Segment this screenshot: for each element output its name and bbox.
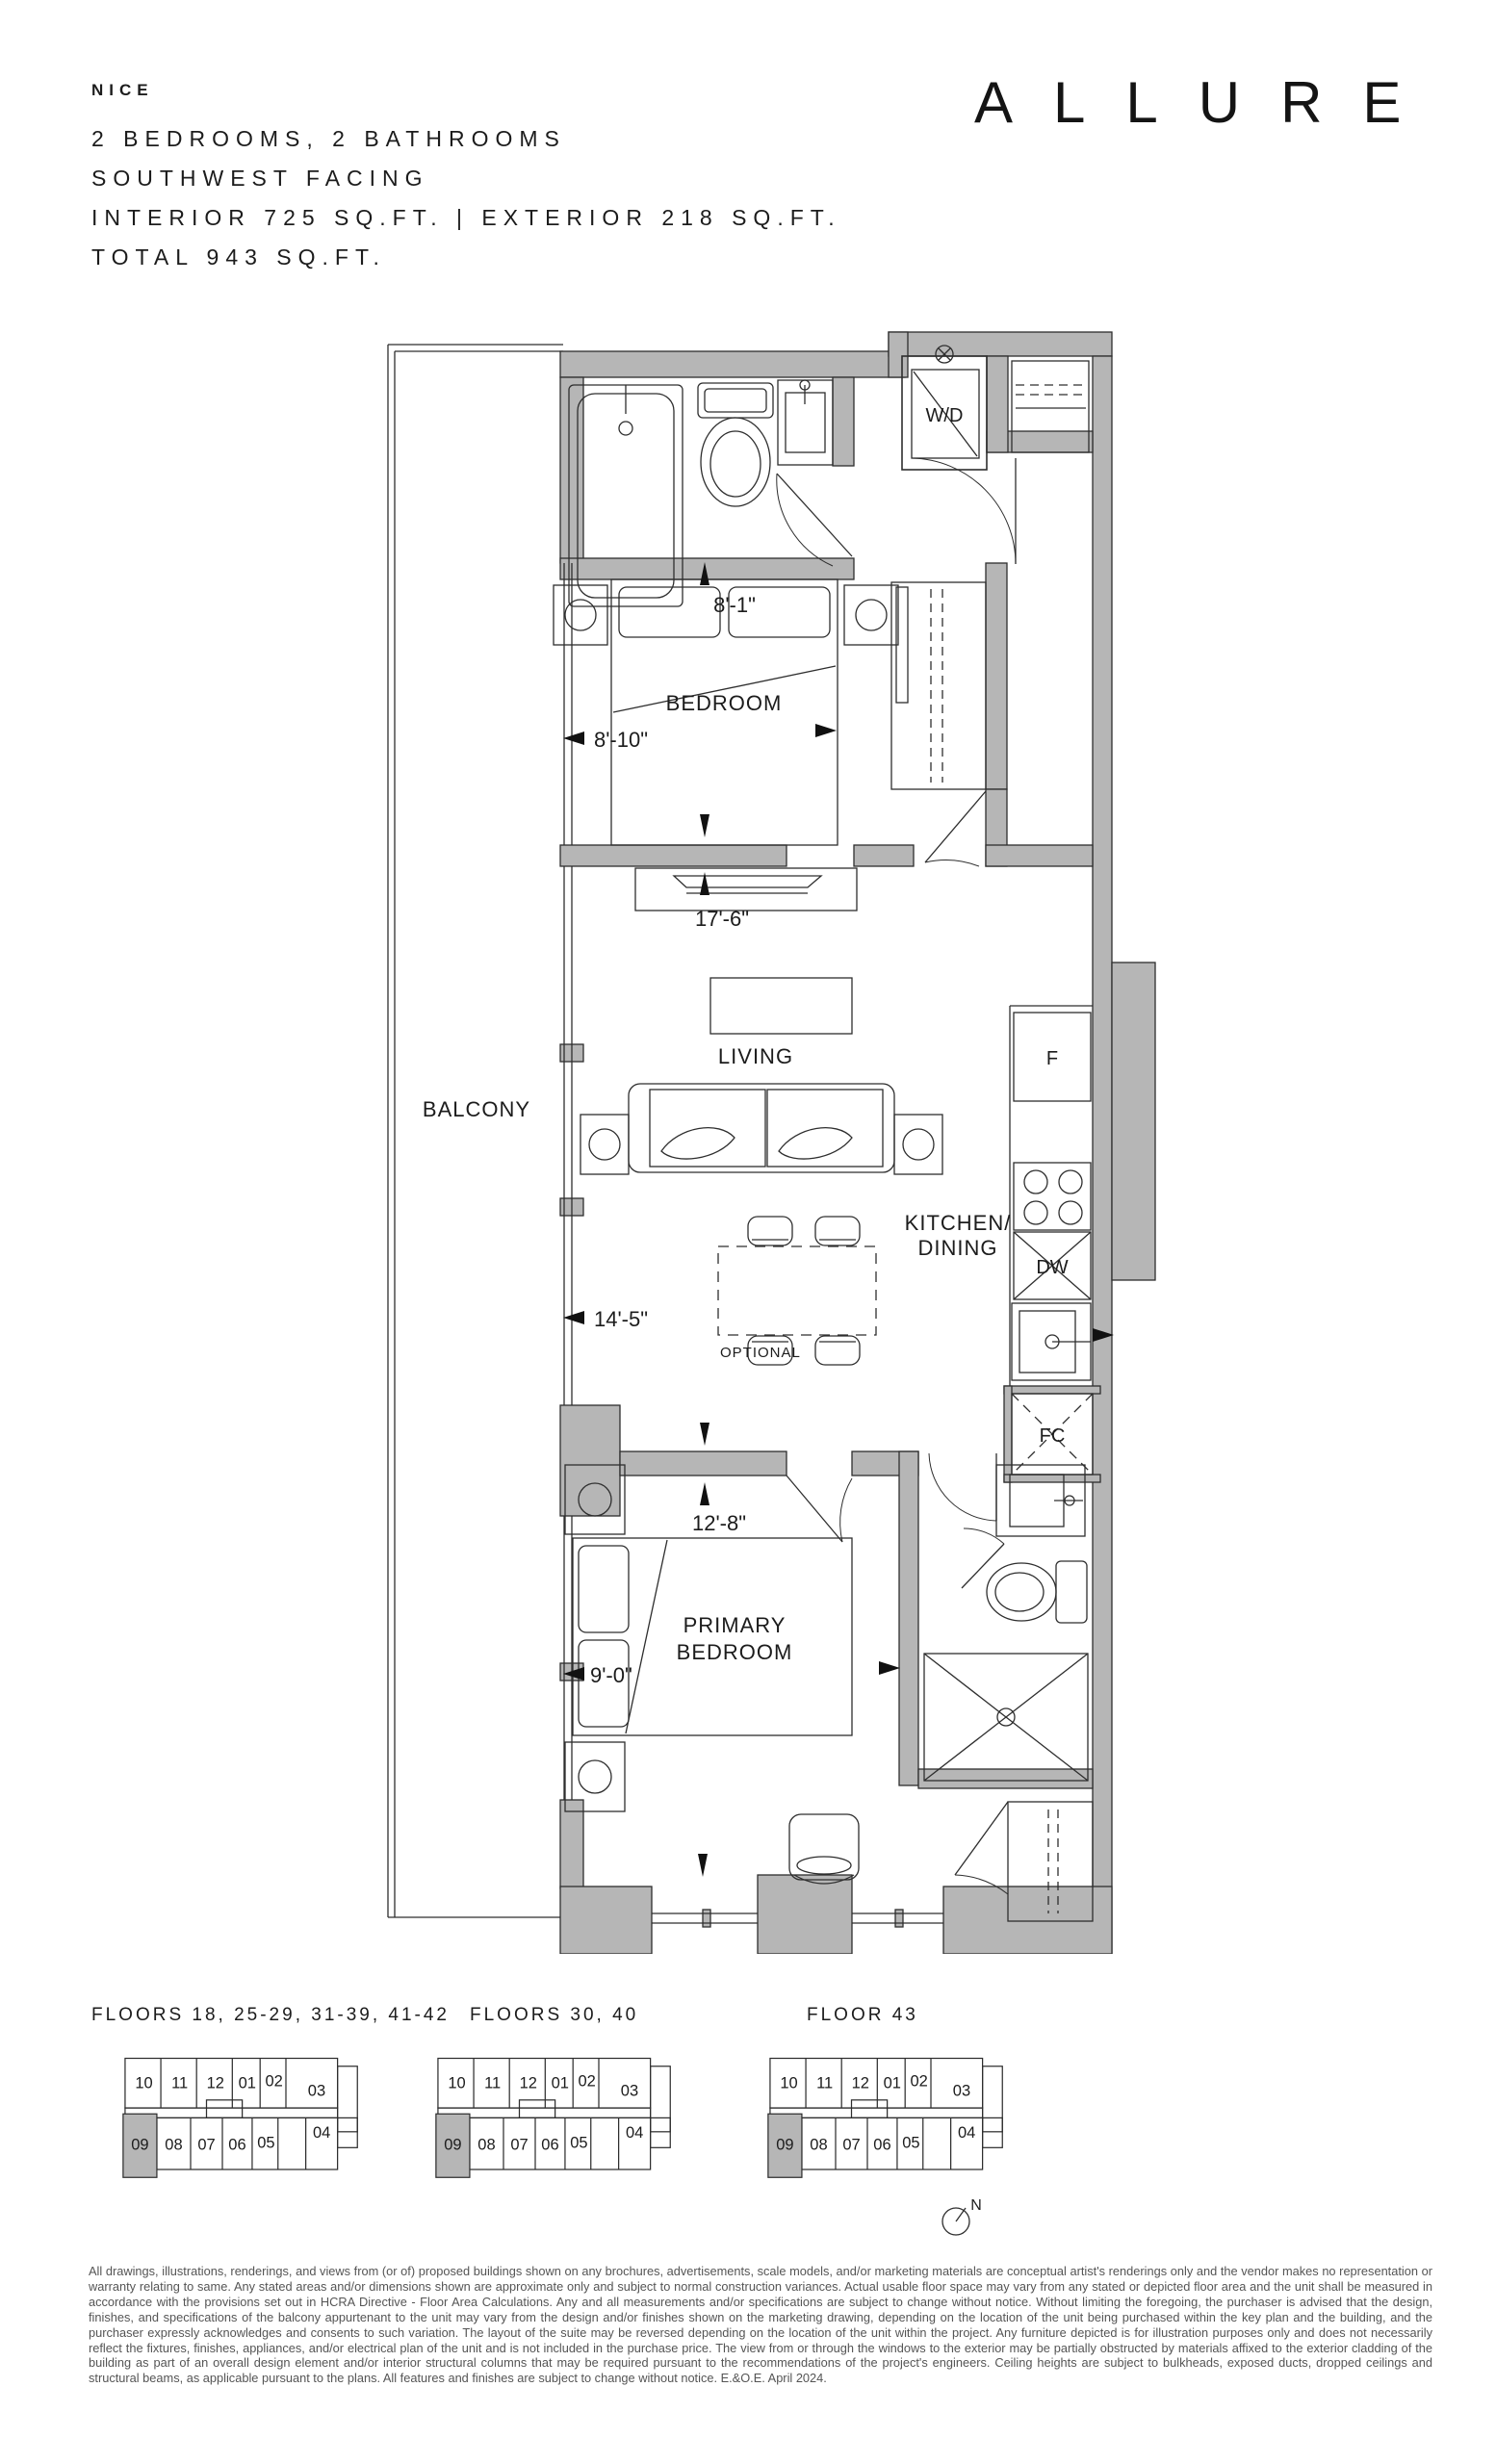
tv-console-icon xyxy=(635,868,857,911)
unit-name: NICE xyxy=(91,81,841,100)
dim-bedroom-width: 8'-1" xyxy=(713,593,756,617)
ensuite-toilet-icon xyxy=(987,1561,1087,1623)
kp2-unit-06: 06 xyxy=(541,2136,558,2153)
kp2-unit-09: 09 xyxy=(444,2136,461,2153)
kp3-unit-12: 12 xyxy=(852,2074,869,2092)
kp1-unit-06: 06 xyxy=(228,2136,245,2153)
kp1-unit-04: 04 xyxy=(313,2124,330,2142)
kp3-unit-08: 08 xyxy=(810,2136,827,2153)
toilet-icon xyxy=(698,383,773,506)
optional-label: OPTIONAL xyxy=(720,1345,801,1361)
keyplan-1-title: FLOORS 18, 25-29, 31-39, 41-42 xyxy=(91,2005,450,2026)
kp3-unit-04: 04 xyxy=(958,2124,975,2142)
kp2-unit-10: 10 xyxy=(448,2074,465,2092)
kp2-unit-08: 08 xyxy=(477,2136,495,2153)
kp1-unit-05: 05 xyxy=(257,2134,274,2151)
bedroom-door xyxy=(925,791,986,866)
compass-north-label: N xyxy=(970,2197,982,2214)
kp3-unit-07: 07 xyxy=(842,2136,860,2153)
primary-label-line1: PRIMARY xyxy=(684,1613,787,1637)
kp3-unit-10: 10 xyxy=(780,2074,797,2092)
kp2-unit-07: 07 xyxy=(510,2136,528,2153)
kp1-unit-03: 03 xyxy=(308,2083,325,2100)
bedroom-label: BEDROOM xyxy=(666,691,783,715)
kp1-unit-11: 11 xyxy=(171,2074,188,2092)
shower-icon xyxy=(924,1654,1088,1781)
fan-coil-label: FC xyxy=(1040,1425,1066,1447)
kp3-unit-11: 11 xyxy=(816,2074,833,2092)
kitchen-sink-icon xyxy=(1012,1303,1091,1380)
primary-label-line2: BEDROOM xyxy=(677,1640,793,1664)
living-label: LIVING xyxy=(718,1044,793,1068)
brand-logo: ALLURE xyxy=(974,69,1441,136)
compass: N xyxy=(922,2193,994,2246)
bathroom-door xyxy=(777,474,852,566)
kp2-unit-03: 03 xyxy=(621,2083,638,2100)
kp1-unit-01: 01 xyxy=(239,2074,256,2092)
kitchen-label-line2: DINING xyxy=(918,1236,998,1260)
kp1-unit-12: 12 xyxy=(207,2074,224,2092)
kp3-unit-03: 03 xyxy=(953,2083,970,2100)
dim-living-length: 17'-6" xyxy=(695,907,749,931)
floorplan-page: NICE 2 BEDROOMS, 2 BATHROOMS SOUTHWEST F… xyxy=(0,0,1496,2464)
bedroom-closet xyxy=(891,582,986,789)
spec-facing: SOUTHWEST FACING xyxy=(91,159,841,198)
dimension-markers xyxy=(563,562,1114,1877)
dim-bedroom-depth: 8'-10" xyxy=(594,728,648,752)
keyplan-3-title: FLOOR 43 xyxy=(807,2005,918,2026)
spec-total: TOTAL 943 SQ.FT. xyxy=(91,238,841,277)
dim-dining-width: 14'-5" xyxy=(594,1307,648,1331)
balcony-railing xyxy=(388,345,563,1917)
dishwasher-label: DW xyxy=(1036,1257,1068,1278)
entry-door xyxy=(912,458,1016,564)
kp2-unit-11: 11 xyxy=(484,2074,501,2092)
balcony-label: BALCONY xyxy=(423,1097,530,1121)
kp1-unit-08: 08 xyxy=(165,2136,182,2153)
spec-bedrooms: 2 BEDROOMS, 2 BATHROOMS xyxy=(91,119,841,159)
dim-primary-width: 12'-8" xyxy=(692,1511,746,1535)
washer-dryer-label: W/D xyxy=(926,405,964,426)
kitchen-label-line1: KITCHEN/ xyxy=(905,1211,1012,1235)
windows xyxy=(564,563,943,1923)
kp2-unit-04: 04 xyxy=(626,2124,643,2142)
kp1-unit-10: 10 xyxy=(135,2074,152,2092)
kp2-unit-12: 12 xyxy=(520,2074,537,2092)
keyplan-2-title: FLOORS 30, 40 xyxy=(470,2005,638,2026)
kp3-unit-05: 05 xyxy=(902,2134,919,2151)
kp2-unit-02: 02 xyxy=(578,2072,595,2090)
bath-sink-icon xyxy=(778,380,833,465)
kp2-unit-05: 05 xyxy=(570,2134,587,2151)
floorplan-svg: BALCONY BEDROOM LIVING KITCHEN/ DINING P… xyxy=(380,327,1160,1954)
kp2-unit-01: 01 xyxy=(552,2074,569,2092)
keyplan-2: 10 11 12 01 02 03 09 08 07 06 05 04 xyxy=(424,2042,679,2201)
kp1-unit-07: 07 xyxy=(197,2136,215,2153)
primary-hall-door xyxy=(787,1476,852,1542)
kp3-unit-06: 06 xyxy=(873,2136,890,2153)
kp3-unit-09: 09 xyxy=(776,2136,793,2153)
kp3-unit-02: 02 xyxy=(910,2072,927,2090)
balcony-chair-icon xyxy=(789,1814,859,1884)
fridge-label: F xyxy=(1046,1048,1058,1069)
floorplan-drawing: BALCONY BEDROOM LIVING KITCHEN/ DINING P… xyxy=(380,327,1160,1954)
dining-table-icon xyxy=(718,1217,876,1365)
keyplan-1: 10 11 12 01 02 03 09 08 07 06 05 04 xyxy=(111,2042,366,2201)
kp1-unit-02: 02 xyxy=(265,2072,282,2090)
spec-area: INTERIOR 725 SQ.FT. | EXTERIOR 218 SQ.FT… xyxy=(91,198,841,238)
coffee-table-icon xyxy=(710,978,852,1034)
dim-primary-depth: 9'-0" xyxy=(590,1663,632,1687)
legal-disclaimer: All drawings, illustrations, renderings,… xyxy=(89,2264,1432,2386)
header: NICE 2 BEDROOMS, 2 BATHROOMS SOUTHWEST F… xyxy=(91,81,841,277)
sofa-icon xyxy=(580,1084,942,1174)
ensuite-door xyxy=(929,1453,1004,1588)
kp1-unit-09: 09 xyxy=(131,2136,148,2153)
keyplan-3: 10 11 12 01 02 03 09 08 07 06 05 04 xyxy=(756,2042,1011,2201)
kp3-unit-01: 01 xyxy=(884,2074,901,2092)
cooktop-icon xyxy=(1014,1163,1091,1230)
